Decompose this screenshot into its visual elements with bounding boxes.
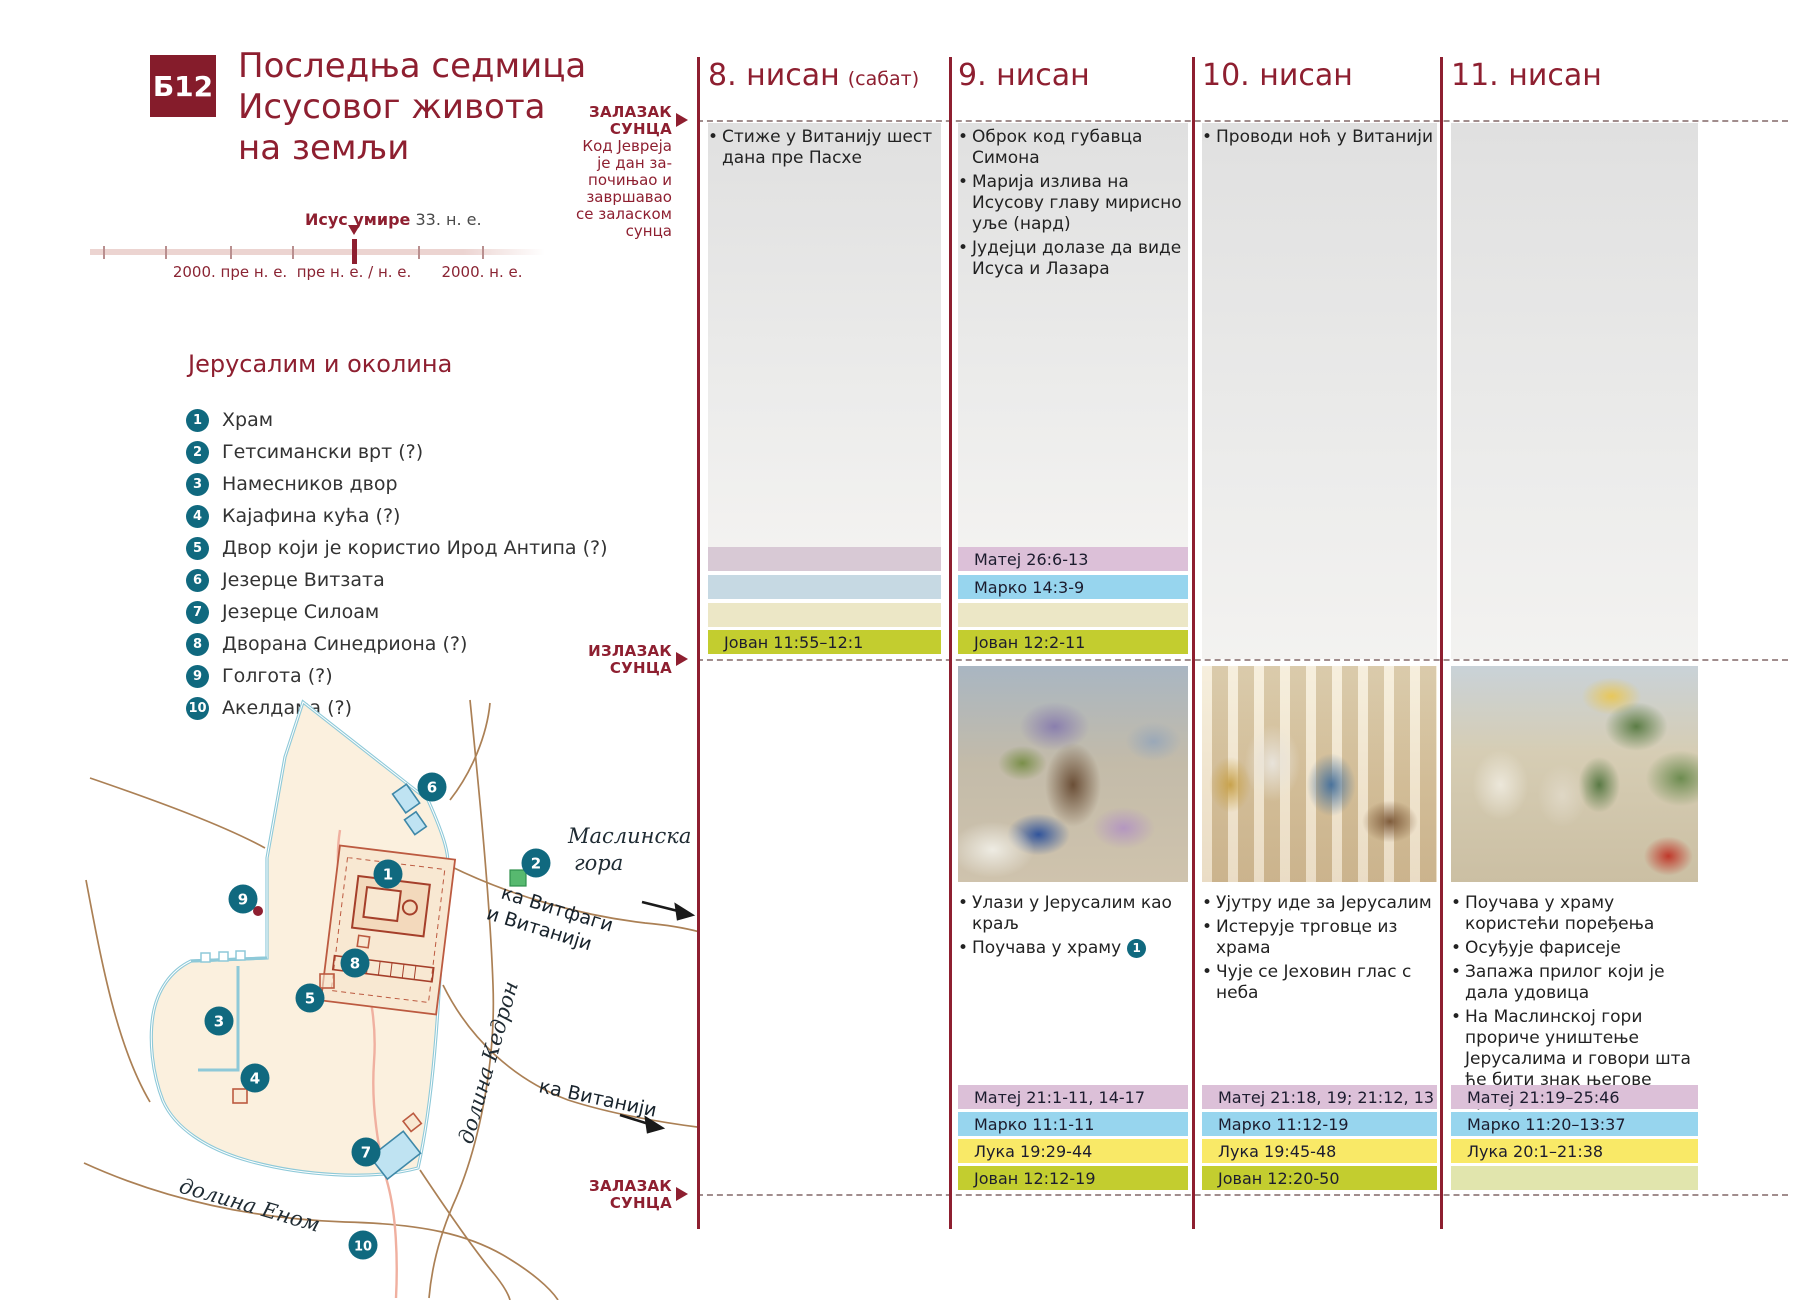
legend-item: 1Храм <box>186 404 608 436</box>
sunset-arrow-bottom <box>676 1187 688 1201</box>
event-text: Улази у Јерусалим као краљ <box>972 893 1188 935</box>
event-text: Оброк код губавца Симона <box>972 127 1188 169</box>
map-marker-2: 2 <box>522 849 551 878</box>
event-list: •Ујутру иде за Јерусалим•Истерује трговц… <box>1202 893 1437 1004</box>
event-list: •Стиже у Витанију шест дана пре Пасхе <box>708 127 941 169</box>
sunrise-label: ИЗЛАЗАК СУНЦА <box>588 643 672 677</box>
timeline-tick <box>165 246 167 259</box>
timeline-tick <box>292 246 294 259</box>
bullet-dot: • <box>708 127 722 169</box>
bullet-dot: • <box>958 238 972 280</box>
timeline-tick <box>482 246 484 259</box>
road-arrow-bethphage <box>642 902 692 919</box>
timeline-caption: Исус умире 33. н. е. <box>305 210 482 229</box>
night-period-area <box>708 123 941 547</box>
legend-item: 2Гетсимански врт (?) <box>186 436 608 468</box>
day-header-text: 10. нисан <box>1202 58 1353 93</box>
bullet-dot: • <box>1451 962 1465 1004</box>
legend-item-label: Кајафина кућа (?) <box>222 505 400 527</box>
svg-text:9: 9 <box>238 891 248 909</box>
event-item: •Осуђује фарисеје <box>1451 938 1698 959</box>
svg-text:4: 4 <box>250 1070 260 1088</box>
event-item: •Чује се Јеховин глас с неба <box>1202 962 1437 1004</box>
event-item: •Улази у Јерусалим као краљ <box>958 893 1188 935</box>
scripture-bar-marko: Марко 14:3-9 <box>958 575 1188 599</box>
olive-mount-label-2: гора <box>574 851 623 875</box>
scripture-bar-marko: Марко 11:20–13:37 <box>1451 1112 1698 1136</box>
svg-text:3: 3 <box>214 1013 224 1031</box>
day-header: 10. нисан <box>1202 58 1353 93</box>
legend-item-label: Гетсимански врт (?) <box>222 441 423 463</box>
legend-item-label: Језерце Витзата <box>222 569 385 591</box>
event-text: Марија излива на Исусову главу мирисно у… <box>972 172 1188 235</box>
page-title-line: Последња седмица <box>238 46 586 87</box>
legend-number-chip: 4 <box>186 505 209 528</box>
event-text: Поучава у храму користећи поређења <box>1465 893 1698 935</box>
sunset-arrow-top <box>676 113 688 127</box>
jewish-day-note: Код Јевреја је дан за- почињао и завршав… <box>576 138 672 240</box>
scripture-bar-luka <box>708 603 941 627</box>
bullet-dot: • <box>1451 938 1465 959</box>
day-header-suffix: (сабат) <box>848 68 919 90</box>
sunrise-arrow <box>676 652 688 666</box>
to-bethany-label: ка Витанији <box>537 1075 659 1121</box>
column-divider-line <box>697 57 700 1229</box>
timeline-tick-label: пре н. е. / н. е. <box>297 263 412 281</box>
scripture-bar-luka <box>958 603 1188 627</box>
scripture-bar-jovan <box>1451 1166 1698 1190</box>
legend-number-chip: 7 <box>186 601 209 624</box>
map-marker-3: 3 <box>205 1007 234 1036</box>
page-title-line: Исусовог живота <box>238 87 586 128</box>
svg-text:10: 10 <box>354 1240 372 1255</box>
day-header: 9. нисан <box>958 58 1090 93</box>
event-item: •Проводи ноћ у Витанији <box>1202 127 1437 148</box>
timeline-axis <box>90 249 545 255</box>
bullet-dot: • <box>1202 917 1216 959</box>
event-list: •Оброк код губавца Симона•Марија излива … <box>958 127 1188 280</box>
legend-item: 4Кајафина кућа (?) <box>186 500 608 532</box>
timeline-tick <box>418 246 420 259</box>
legend-number-chip: 1 <box>186 409 209 432</box>
day-header-text: 11. нисан <box>1451 58 1602 93</box>
scripture-bar-matej: Матеј 21:18, 19; 21:12, 13 <box>1202 1085 1437 1109</box>
column-divider-line <box>949 57 952 1229</box>
map-legend-heading: Јерусалим и околина <box>188 350 452 378</box>
event-item: •Ујутру иде за Јерусалим <box>1202 893 1437 914</box>
bullet-dot: • <box>1451 893 1465 935</box>
event-text: Јудејци долазе да виде Исуса и Лазара <box>972 238 1188 280</box>
illustration-entry <box>958 666 1188 882</box>
legend-item: 7Језерце Силоам <box>186 596 608 628</box>
svg-text:1: 1 <box>383 866 393 884</box>
event-text: Истерује трговце из храма <box>1216 917 1437 959</box>
map-marker-6: 6 <box>418 773 447 802</box>
bullet-dot: • <box>958 127 972 169</box>
timeline-tick <box>103 246 105 259</box>
column-divider-line <box>1192 57 1195 1229</box>
day-header-text: 9. нисан <box>958 58 1090 93</box>
map-marker-1: 1 <box>374 860 403 889</box>
day-header: 11. нисан <box>1451 58 1602 93</box>
timeline-tick <box>230 246 232 259</box>
scripture-bar-marko: Марко 11:12-19 <box>1202 1112 1437 1136</box>
timeline-marker-triangle <box>348 225 360 235</box>
bullet-dot: • <box>1202 893 1216 914</box>
event-text: Запажа прилог који је дала удовица <box>1465 962 1698 1004</box>
sunset-label-top: ЗАЛАЗАК СУНЦА <box>589 104 672 138</box>
legend-item: 3Намесников двор <box>186 468 608 500</box>
legend-number-chip: 2 <box>186 441 209 464</box>
scripture-bar-jovan: Јован 12:12-19 <box>958 1166 1188 1190</box>
scripture-bar-marko: Марко 11:1-11 <box>958 1112 1188 1136</box>
timeline-tick-label: 2000. пре н. е. <box>173 263 287 281</box>
night-period-area <box>1202 123 1437 659</box>
olive-mount-label: Маслинска <box>567 824 691 848</box>
chart-id-badge: Б12 <box>150 55 216 117</box>
event-text: Поучава у храму <box>972 938 1121 959</box>
map-marker-7: 7 <box>352 1138 381 1167</box>
event-item: •Истерује трговце из храма <box>1202 917 1437 959</box>
scripture-bar-marko <box>708 575 941 599</box>
legend-number-chip: 6 <box>186 569 209 592</box>
map-marker-4: 4 <box>241 1064 270 1093</box>
day-header-text: 8. нисан <box>708 58 840 93</box>
sunset-label-bottom: ЗАЛАЗАК СУНЦА <box>589 1178 672 1212</box>
scripture-bar-matej: Матеј 21:19–25:46 <box>1451 1085 1698 1109</box>
map-ref-marker: 1 <box>1127 939 1146 958</box>
map-marker-5: 5 <box>296 984 325 1013</box>
kidron-valley-label: долина Кедрон <box>454 978 523 1146</box>
timeline-death-marker <box>352 239 357 264</box>
scripture-bar-matej: Матеј 21:1-11, 14-17 <box>958 1085 1188 1109</box>
map-marker-9: 9 <box>229 885 258 914</box>
event-list: •Проводи ноћ у Витанији <box>1202 127 1437 148</box>
bullet-dot: • <box>1202 127 1216 148</box>
svg-text:5: 5 <box>305 990 315 1008</box>
illustration-temple <box>1202 666 1437 882</box>
event-item: •Стиже у Витанију шест дана пре Пасхе <box>708 127 941 169</box>
column-divider-line <box>1440 57 1443 1229</box>
wall-gates <box>201 951 245 962</box>
scripture-bar-luka: Лука 19:45-48 <box>1202 1139 1437 1163</box>
bullet-dot: • <box>958 893 972 935</box>
legend-item-label: Двор који је користио Ирод Антипа (?) <box>222 537 608 559</box>
map-marker-8: 8 <box>341 949 370 978</box>
legend-item: 5Двор који је користио Ирод Антипа (?) <box>186 532 608 564</box>
event-text: Ујутру иде за Јерусалим <box>1216 893 1432 914</box>
bullet-dot: • <box>958 938 972 959</box>
night-period-area <box>1451 123 1698 659</box>
scripture-bar-luka: Лука 20:1–21:38 <box>1451 1139 1698 1163</box>
timeline-tick-label: 2000. н. е. <box>441 263 522 281</box>
hinnom-valley-label: долина Еном <box>177 1174 323 1237</box>
event-item: •Поучава у храму1 <box>958 938 1188 959</box>
event-item: •Поучава у храму користећи поређења <box>1451 893 1698 935</box>
event-list: •Улази у Јерусалим као краљ•Поучава у хр… <box>958 893 1188 959</box>
event-item: •Запажа прилог који је дала удовица <box>1451 962 1698 1004</box>
scripture-bar-jovan: Јован 12:2-11 <box>958 630 1188 654</box>
to-bethphage-label: ка Витфаги и Витанији <box>484 879 616 959</box>
sunset-line-bottom <box>697 1194 1788 1196</box>
scripture-bar-jovan: Јован 12:20-50 <box>1202 1166 1437 1190</box>
scripture-bar-jovan: Јован 11:55–12:1 <box>708 630 941 654</box>
sunset-line-top <box>697 120 1788 122</box>
legend-item-label: Језерце Силоам <box>222 601 379 623</box>
event-list: •Поучава у храму користећи поређења•Осуђ… <box>1451 893 1698 1112</box>
legend-number-chip: 5 <box>186 537 209 560</box>
infographic-canvas: Б12 Последња седмицаИсусовог животана зе… <box>0 0 1800 1300</box>
page-title: Последња седмицаИсусовог животана земљи <box>238 46 586 169</box>
svg-text:6: 6 <box>427 779 437 797</box>
sunrise-line <box>697 659 1788 661</box>
event-text: Проводи ноћ у Витанији <box>1216 127 1433 148</box>
legend-item: 6Језерце Витзата <box>186 564 608 596</box>
scripture-bar-luka: Лука 19:29-44 <box>958 1139 1188 1163</box>
day-header: 8. нисан(сабат) <box>708 58 919 93</box>
scripture-bar-matej <box>708 547 941 571</box>
svg-text:8: 8 <box>350 955 360 973</box>
bullet-dot: • <box>958 172 972 235</box>
event-text: Чује се Јеховин глас с неба <box>1216 962 1437 1004</box>
page-title-line: на земљи <box>238 128 586 169</box>
event-item: •Марија излива на Исусову главу мирисно … <box>958 172 1188 235</box>
map-marker-10: 10 <box>349 1231 378 1260</box>
illustration-teaching <box>1451 666 1698 882</box>
svg-text:2: 2 <box>531 855 541 873</box>
event-item: •Оброк код губавца Симона <box>958 127 1188 169</box>
svg-text:7: 7 <box>361 1144 371 1162</box>
event-text: Осуђује фарисеје <box>1465 938 1621 959</box>
legend-number-chip: 3 <box>186 473 209 496</box>
scripture-bar-matej: Матеј 26:6-13 <box>958 547 1188 571</box>
legend-item-label: Храм <box>222 409 273 431</box>
event-text: Стиже у Витанију шест дана пре Пасхе <box>722 127 941 169</box>
legend-item-label: Намесников двор <box>222 473 398 495</box>
bullet-dot: • <box>1202 962 1216 1004</box>
event-item: •Јудејци долазе да виде Исуса и Лазара <box>958 238 1188 280</box>
